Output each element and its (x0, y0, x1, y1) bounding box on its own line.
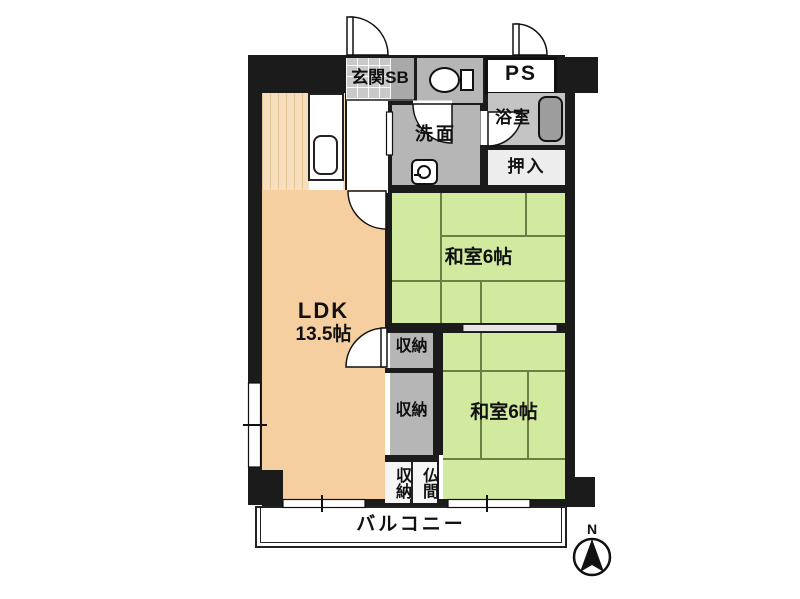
tatami-line (440, 235, 565, 237)
wall-pillar-top-right (553, 57, 598, 93)
entrance-door-leaf (347, 17, 353, 55)
compass-needle (580, 539, 604, 572)
label-pipe-space: PS (485, 62, 557, 86)
label-tatami-lower: 和室6帖 (443, 402, 565, 424)
kitchen-sink-icon (313, 135, 338, 175)
tatami-line (443, 370, 565, 372)
label-storage-bottom: 収納 (387, 464, 409, 502)
label-butsuma: 仏間 (414, 464, 436, 502)
toilet-tank (460, 69, 474, 91)
service-door-leaf (513, 24, 519, 55)
label-entrance: 玄関SB (346, 68, 414, 88)
wall-closet-right (433, 333, 443, 455)
wall-left (248, 55, 262, 505)
tatami-line (480, 333, 482, 458)
label-compass-north: N (583, 521, 601, 537)
washbasin-bowl (417, 165, 431, 179)
toilet-icon (429, 65, 477, 95)
kitchen-counter-lip (309, 181, 343, 190)
entrance-door-arc (350, 17, 388, 55)
tatami-line (443, 458, 565, 460)
hallway-floor (347, 101, 388, 190)
wall-tatami-upper-top (388, 185, 565, 193)
wall-right (565, 93, 575, 507)
tatami-line (480, 280, 482, 323)
label-storage-mid: 収納 (390, 402, 433, 420)
label-ldk-name: LDK (262, 298, 385, 323)
wall-ldk-tatami (385, 193, 392, 328)
service-door-arc (516, 24, 547, 55)
toilet-bowl (429, 67, 460, 93)
bathtub-icon (538, 96, 563, 142)
label-ldk-size: 13.5帖 (262, 324, 385, 346)
label-tatami-upper: 和室6帖 (392, 247, 565, 269)
label-washroom: 洗面 (392, 124, 480, 145)
label-balcony: バルコニー (255, 514, 567, 536)
compass-icon (574, 539, 610, 575)
washbasin-icon (411, 159, 438, 185)
label-oshiire: 押入 (488, 157, 565, 177)
wall-tatami-mid (385, 323, 565, 333)
floor-plan: 玄関SB PS 浴室 洗面 押入 和室6帖 和室6帖 LDK 13.5帖 収納 … (0, 0, 800, 599)
label-storage-upper: 収納 (390, 338, 433, 356)
wall-closet-bottom (385, 455, 433, 462)
tatami-line (525, 193, 527, 235)
washbasin-tap (414, 174, 421, 176)
tatami-line (392, 280, 565, 282)
wall-pillar-bottom-left-top (250, 470, 283, 505)
label-bathroom: 浴室 (487, 108, 539, 128)
